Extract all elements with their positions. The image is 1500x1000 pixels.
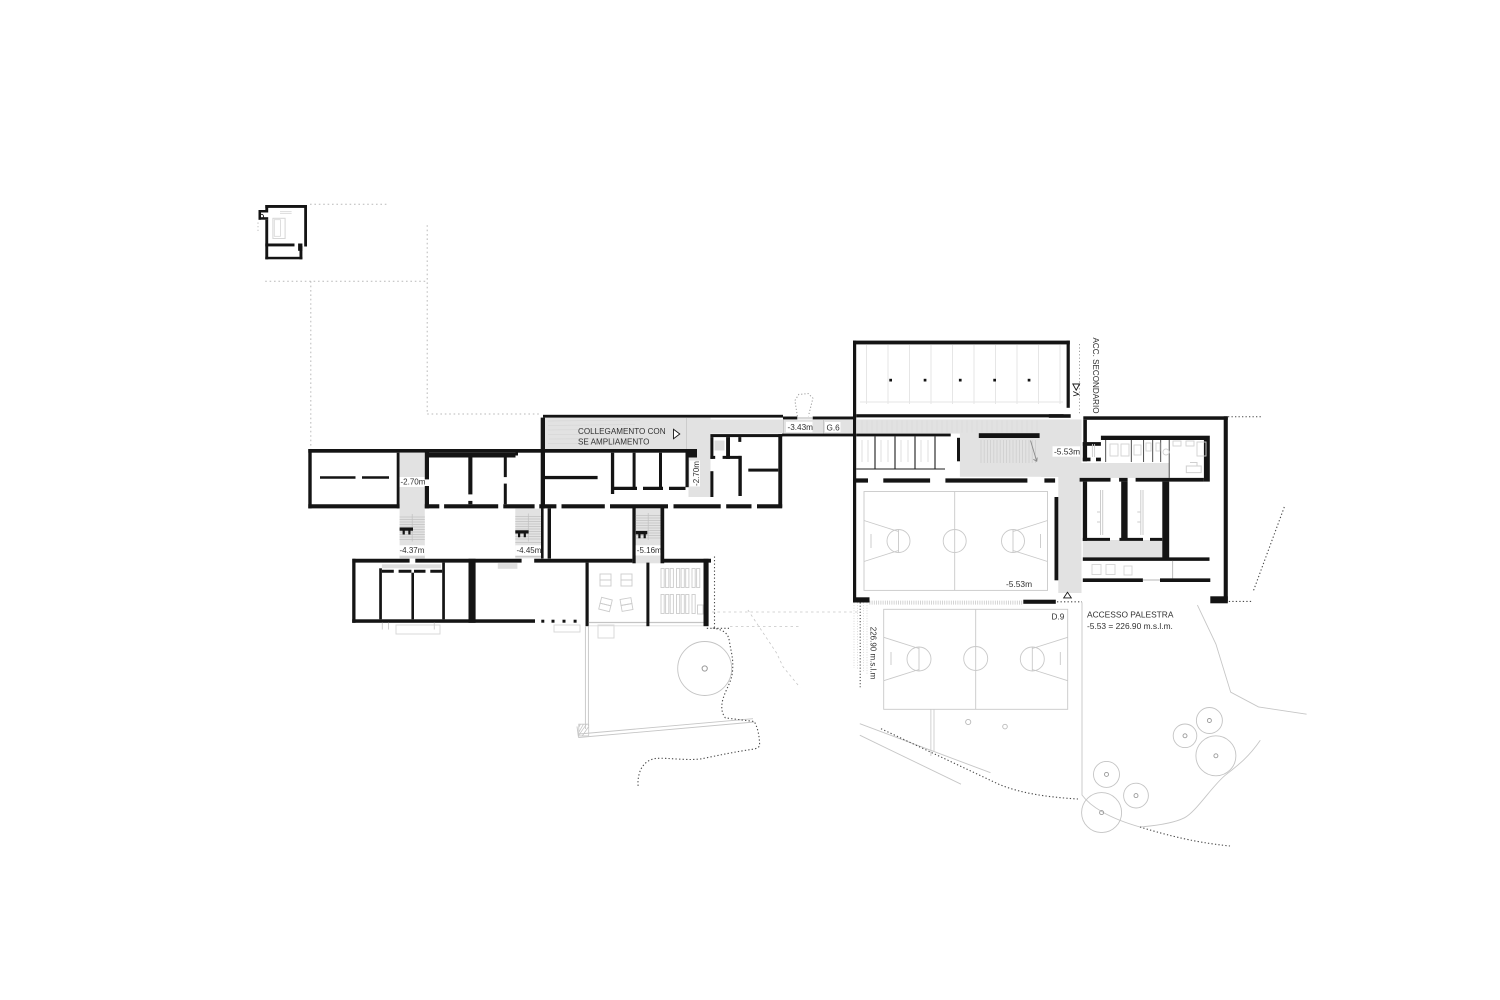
svg-text:-4.37m: -4.37m [400, 546, 425, 555]
svg-text:G.6: G.6 [827, 423, 841, 432]
svg-text:COLLEGAMENTO CON: COLLEGAMENTO CON [578, 427, 666, 436]
svg-text:226.90 m.s.l.m: 226.90 m.s.l.m [869, 627, 878, 680]
svg-text:SE AMPLIAMENTO: SE AMPLIAMENTO [578, 438, 649, 447]
svg-text:-5.53m: -5.53m [1054, 447, 1080, 457]
svg-text:-5.16m: -5.16m [637, 546, 662, 555]
svg-text:-4.45m: -4.45m [517, 546, 542, 555]
svg-text:-2.70m: -2.70m [401, 478, 426, 487]
svg-text:ACC. SECONDARIO: ACC. SECONDARIO [1091, 337, 1100, 413]
svg-text:ACCESSO PALESTRA: ACCESSO PALESTRA [1087, 610, 1174, 620]
svg-text:-5.53 = 226.90 m.s.l.m.: -5.53 = 226.90 m.s.l.m. [1087, 621, 1173, 631]
svg-text:D.9: D.9 [1052, 613, 1065, 622]
svg-text:-2.70m: -2.70m [692, 461, 701, 486]
svg-text:-5.53m: -5.53m [1006, 579, 1032, 589]
svg-text:-3.43m: -3.43m [788, 423, 814, 432]
